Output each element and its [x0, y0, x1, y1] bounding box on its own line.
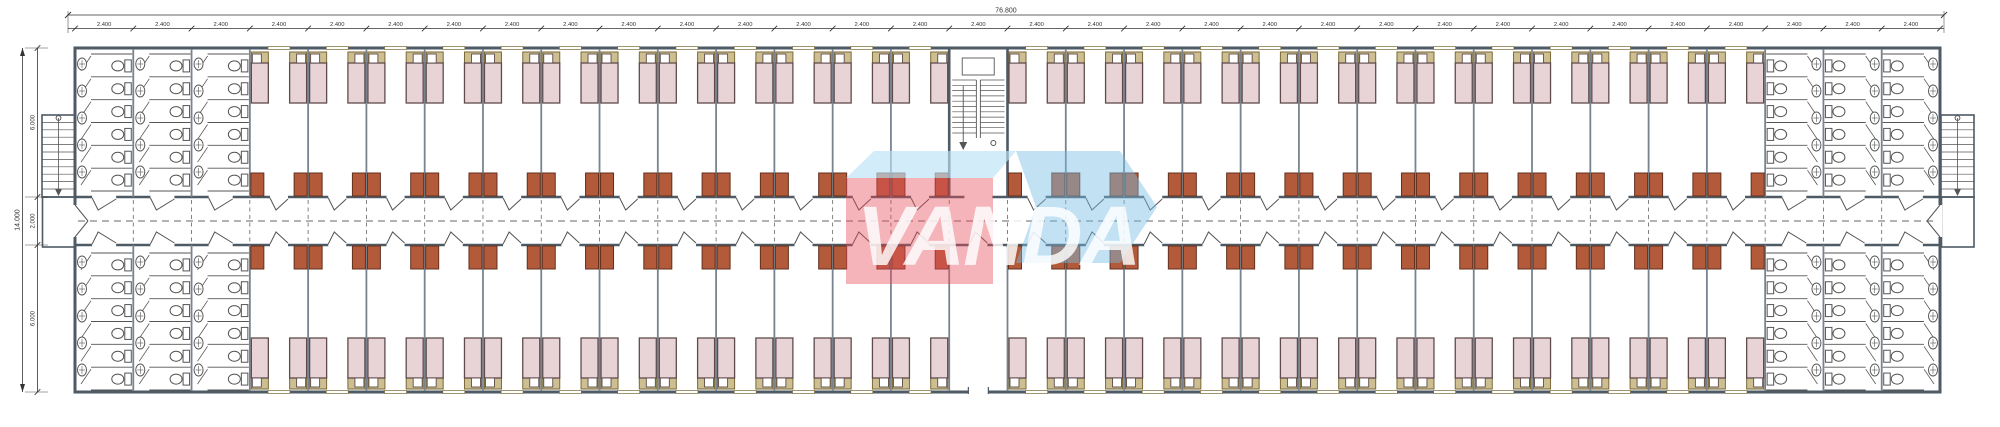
window	[618, 391, 640, 394]
wardrobe	[469, 173, 482, 196]
toilet-bowl	[170, 351, 182, 361]
bed-mattress	[1300, 338, 1317, 378]
bed-pillow	[1360, 54, 1369, 63]
window	[676, 391, 698, 394]
door-opening	[1202, 243, 1220, 247]
toilet-tank	[1884, 259, 1891, 271]
bed-mattress	[1514, 63, 1531, 103]
bed-pillow	[1754, 378, 1763, 387]
wardrobe	[601, 246, 614, 269]
bed-pillow	[544, 378, 553, 387]
toilet-tank	[1884, 282, 1891, 294]
dim-label-segment: 2.000	[31, 213, 37, 229]
toilet-tank	[241, 60, 248, 72]
door-opening	[73, 205, 77, 237]
bed-pillow	[1346, 54, 1355, 63]
bed-pillow	[879, 378, 888, 387]
bed-mattress	[1339, 63, 1356, 103]
wardrobe	[294, 246, 307, 269]
wardrobe	[1751, 173, 1764, 196]
bed-mattress	[251, 63, 268, 103]
bed-mattress	[1417, 63, 1434, 103]
bed-mattress	[1047, 338, 1064, 378]
window	[793, 391, 815, 394]
toilet-bowl	[1891, 61, 1903, 71]
toilet-tank	[241, 350, 248, 362]
wardrobe	[659, 173, 672, 196]
bed-mattress	[1475, 63, 1492, 103]
toilet-bowl	[1833, 61, 1845, 71]
bed-mattress	[1106, 338, 1123, 378]
bed-pillow	[297, 378, 306, 387]
bed-mattress	[1067, 338, 1084, 378]
toilet-bowl	[1891, 152, 1903, 162]
door-opening	[1938, 205, 1942, 237]
toilet-tank	[1884, 305, 1891, 317]
wardrobe	[1576, 173, 1589, 196]
dim-label-module: 2.400	[388, 22, 403, 28]
toilet-bowl	[1833, 152, 1845, 162]
window	[268, 47, 290, 50]
bed-mattress	[1708, 63, 1725, 103]
window	[1667, 391, 1689, 394]
toilet-tank	[183, 373, 190, 385]
bed-mattress	[1572, 338, 1589, 378]
toilet-bowl	[112, 283, 124, 293]
bed-pillow	[719, 378, 728, 387]
door-opening	[92, 195, 116, 199]
toilet-bowl	[1775, 260, 1787, 270]
toilet-bowl	[1833, 374, 1845, 384]
door-opening	[1494, 195, 1512, 199]
bed-mattress	[1514, 338, 1531, 378]
bed-pillow	[777, 378, 786, 387]
toilet-bowl	[228, 328, 240, 338]
toilet-bowl	[228, 61, 240, 71]
toilet-tank	[241, 106, 248, 118]
toilet-bowl	[1891, 374, 1903, 384]
bed-mattress	[464, 63, 481, 103]
bed-mattress	[348, 63, 365, 103]
stair-down-arrow	[1954, 189, 1961, 196]
bed-pillow	[1068, 54, 1077, 63]
window	[1725, 47, 1747, 50]
door-opening	[270, 243, 288, 247]
door-opening	[1782, 243, 1806, 247]
toilet-bowl	[1775, 107, 1787, 117]
toilet-tank	[1884, 174, 1891, 186]
toilet-tank	[125, 282, 132, 294]
dim-label-module: 2.400	[1670, 22, 1685, 28]
bed-mattress	[1106, 63, 1123, 103]
bed-pillow	[1287, 378, 1296, 387]
bed-mattress	[1126, 338, 1143, 378]
toilet-bowl	[1891, 328, 1903, 338]
toilet-bowl	[1891, 306, 1903, 316]
wardrobe	[1285, 246, 1298, 269]
door-opening	[1899, 195, 1923, 199]
toilet-tank	[1825, 174, 1832, 186]
bed-mattress	[426, 63, 443, 103]
door-opening	[1377, 195, 1395, 199]
bed-mattress	[523, 63, 540, 103]
bed-mattress	[776, 338, 793, 378]
bed-mattress	[1688, 338, 1705, 378]
wardrobe	[1416, 173, 1429, 196]
bed-mattress	[1359, 63, 1376, 103]
toilet-bowl	[170, 129, 182, 139]
window	[326, 47, 348, 50]
bed-mattress	[601, 338, 618, 378]
toilet-tank	[125, 83, 132, 95]
toilet-bowl	[112, 306, 124, 316]
toilet-bowl	[1891, 260, 1903, 270]
bed-mattress	[1397, 63, 1414, 103]
toilet-tank	[241, 83, 248, 95]
bed-mattress	[1242, 63, 1259, 103]
dim-label-module: 2.400	[1612, 22, 1627, 28]
door-opening	[620, 243, 638, 247]
wardrobe	[1708, 246, 1721, 269]
window	[268, 391, 290, 394]
toilet-bowl	[1833, 129, 1845, 139]
bed-mattress	[348, 338, 365, 378]
bed-mattress	[1184, 63, 1201, 103]
wardrobe	[1693, 246, 1706, 269]
door-opening	[678, 195, 696, 199]
toilet-tank	[125, 151, 132, 163]
bed-mattress	[659, 63, 676, 103]
toilet-tank	[1884, 151, 1891, 163]
door-opening	[503, 195, 521, 199]
door-opening	[620, 195, 638, 199]
toilet-tank	[241, 327, 248, 339]
bed-pillow	[1579, 378, 1588, 387]
bed-mattress	[1572, 63, 1589, 103]
toilet-bowl	[1891, 129, 1903, 139]
dim-label-module: 2.400	[1204, 22, 1219, 28]
toilet-bowl	[170, 374, 182, 384]
toilet-bowl	[228, 84, 240, 94]
wardrobe	[1227, 173, 1240, 196]
bed-mattress	[718, 338, 735, 378]
toilet-tank	[1825, 106, 1832, 118]
bed-pillow	[1637, 54, 1646, 63]
door-opening	[1669, 243, 1687, 247]
bed-pillow	[705, 54, 714, 63]
toilet-bowl	[228, 351, 240, 361]
bed-pillow	[763, 378, 772, 387]
wardrobe	[1751, 246, 1764, 269]
toilet-tank	[1767, 106, 1774, 118]
toilet-tank	[125, 128, 132, 140]
bed-mattress	[1009, 63, 1026, 103]
dim-label-module: 2.400	[680, 22, 695, 28]
bed-mattress	[601, 63, 618, 103]
toilet-tank	[1767, 373, 1774, 385]
toilet-bowl	[1775, 306, 1787, 316]
wardrobe	[1168, 173, 1181, 196]
toilet-bowl	[1891, 84, 1903, 94]
toilet-tank	[183, 259, 190, 271]
bed-pillow	[544, 54, 553, 63]
toilet-tank	[241, 373, 248, 385]
wardrobe	[601, 173, 614, 196]
bed-mattress	[1067, 63, 1084, 103]
wardrobe	[1168, 246, 1181, 269]
bed-mattress	[872, 338, 889, 378]
floor-plan-svg: 76.8002.4002.4002.4002.4002.4002.4002.40…	[0, 0, 2000, 427]
door-opening	[209, 243, 233, 247]
window	[1434, 47, 1456, 50]
bed-pillow	[1709, 378, 1718, 387]
wardrobe	[834, 246, 847, 269]
bed-mattress	[1534, 338, 1551, 378]
bed-mattress	[834, 63, 851, 103]
dim-label-segment: 6.000	[31, 310, 37, 326]
toilet-tank	[1884, 373, 1891, 385]
wardrobe	[1533, 173, 1546, 196]
bed-mattress	[872, 63, 889, 103]
toilet-tank	[183, 83, 190, 95]
bed-pillow	[1185, 378, 1194, 387]
bed-pillow	[427, 378, 436, 387]
bed-pillow	[1346, 378, 1355, 387]
window	[793, 47, 815, 50]
bed-mattress	[1630, 338, 1647, 378]
window	[1200, 47, 1222, 50]
window	[1142, 47, 1164, 50]
toilet-tank	[1825, 60, 1832, 72]
window	[1084, 391, 1106, 394]
window	[1375, 47, 1397, 50]
window	[559, 391, 581, 394]
dim-label-total: 76.800	[995, 8, 1017, 15]
bed-mattress	[1630, 63, 1647, 103]
bed-pillow	[252, 378, 261, 387]
bed-pillow	[1068, 378, 1077, 387]
bed-pillow	[821, 54, 830, 63]
wardrobe	[352, 246, 365, 269]
dim-label-module: 2.400	[1321, 22, 1336, 28]
wardrobe	[1576, 246, 1589, 269]
door-opening	[445, 195, 463, 199]
toilet-bowl	[170, 260, 182, 270]
bed-mattress	[484, 338, 501, 378]
wardrobe	[1693, 173, 1706, 196]
bed-mattress	[718, 63, 735, 103]
toilet-tank	[125, 305, 132, 317]
bed-pillow	[1229, 378, 1238, 387]
bed-mattress	[543, 338, 560, 378]
dim-label-module: 2.400	[1379, 22, 1394, 28]
bed-pillow	[1287, 54, 1296, 63]
toilet-bowl	[228, 175, 240, 185]
bed-pillow	[485, 54, 494, 63]
bed-mattress	[368, 338, 385, 378]
dim-label-module: 2.400	[1554, 22, 1569, 28]
bed-pillow	[1579, 54, 1588, 63]
toilet-tank	[241, 305, 248, 317]
door-opening	[270, 195, 288, 199]
bed-pillow	[602, 54, 611, 63]
window	[1434, 391, 1456, 394]
window	[443, 391, 465, 394]
toilet-bowl	[112, 107, 124, 117]
wardrobe	[1358, 246, 1371, 269]
door-opening	[1144, 243, 1162, 247]
stair-landing	[43, 197, 76, 247]
window	[851, 47, 873, 50]
window	[1492, 391, 1514, 394]
bed-pillow	[311, 54, 320, 63]
wardrobe	[1300, 246, 1313, 269]
bed-pillow	[1418, 54, 1427, 63]
toilet-tank	[125, 60, 132, 72]
bed-pillow	[1418, 378, 1427, 387]
toilet-tank	[1884, 60, 1891, 72]
wardrobe	[484, 173, 497, 196]
toilet-bowl	[1833, 84, 1845, 94]
dim-label-module: 2.400	[1845, 22, 1860, 28]
door-opening	[678, 243, 696, 247]
wardrobe	[1475, 246, 1488, 269]
toilet-bowl	[1775, 61, 1787, 71]
bed-pillow	[1521, 54, 1530, 63]
wardrobe	[644, 246, 657, 269]
dim-label-module: 2.400	[155, 22, 170, 28]
toilet-tank	[1884, 350, 1891, 362]
toilet-tank	[125, 259, 132, 271]
wardrobe	[1460, 173, 1473, 196]
bed-mattress	[659, 338, 676, 378]
bed-mattress	[1184, 338, 1201, 378]
bed-pillow	[530, 378, 539, 387]
bed-pillow	[1054, 54, 1063, 63]
toilet-tank	[1825, 128, 1832, 140]
window	[501, 47, 523, 50]
window	[1026, 391, 1048, 394]
bed-pillow	[1637, 378, 1646, 387]
door-opening	[1610, 243, 1628, 247]
bed-mattress	[698, 63, 715, 103]
toilet-bowl	[112, 152, 124, 162]
window	[734, 47, 756, 50]
bed-pillow	[471, 378, 480, 387]
wardrobe	[702, 246, 715, 269]
wardrobe	[1533, 246, 1546, 269]
bed-pillow	[1010, 54, 1019, 63]
dim-label-module: 2.400	[1787, 22, 1802, 28]
wardrobe	[1460, 246, 1473, 269]
bed-pillow	[355, 378, 364, 387]
door-opening	[387, 243, 405, 247]
wardrobe	[1183, 173, 1196, 196]
door-opening	[503, 243, 521, 247]
window	[1550, 391, 1572, 394]
bed-pillow	[705, 378, 714, 387]
wardrobe	[717, 246, 730, 269]
wardrobe	[760, 173, 773, 196]
door-opening	[1552, 243, 1570, 247]
toilet-bowl	[1833, 260, 1845, 270]
wardrobe	[586, 173, 599, 196]
toilet-tank	[1825, 282, 1832, 294]
dim-label-module: 2.400	[1496, 22, 1511, 28]
bed-mattress	[1747, 63, 1764, 103]
wardrobe	[542, 246, 555, 269]
stair-down-arrow	[55, 189, 62, 196]
wardrobe	[309, 246, 322, 269]
wardrobe	[1518, 173, 1531, 196]
wardrobe	[469, 246, 482, 269]
window	[1667, 47, 1689, 50]
window	[909, 47, 931, 50]
dim-label-module: 2.400	[913, 22, 928, 28]
door-opening	[736, 195, 754, 199]
bed-pillow	[1476, 54, 1485, 63]
bed-mattress	[1164, 63, 1181, 103]
bed-pillow	[1462, 54, 1471, 63]
dim-label-module: 2.400	[621, 22, 636, 28]
bed-mattress	[1009, 338, 1026, 378]
bed-pillow	[1695, 378, 1704, 387]
bed-mattress	[1222, 338, 1239, 378]
bed-pillow	[1476, 378, 1485, 387]
bed-mattress	[814, 338, 831, 378]
bed-mattress	[1650, 338, 1667, 378]
dim-label-module: 2.400	[1729, 22, 1744, 28]
bed-mattress	[1047, 63, 1064, 103]
bed-pillow	[485, 378, 494, 387]
wardrobe	[1227, 246, 1240, 269]
dim-label-module: 2.400	[1088, 22, 1103, 28]
bed-pillow	[1185, 54, 1194, 63]
toilet-bowl	[112, 129, 124, 139]
bed-mattress	[892, 63, 909, 103]
bed-mattress	[756, 338, 773, 378]
bed-mattress	[1397, 338, 1414, 378]
door-opening	[1261, 243, 1279, 247]
bed-mattress	[368, 63, 385, 103]
toilet-tank	[241, 282, 248, 294]
wardrobe	[309, 173, 322, 196]
window	[385, 391, 407, 394]
door-opening	[1202, 195, 1220, 199]
bed-mattress	[639, 63, 656, 103]
bed-pillow	[1171, 54, 1180, 63]
wardrobe	[1708, 173, 1721, 196]
door-opening	[1319, 195, 1337, 199]
bed-mattress	[581, 338, 598, 378]
wardrobe	[1591, 173, 1604, 196]
bed-mattress	[639, 338, 656, 378]
bed-pillow	[821, 378, 830, 387]
door-opening	[209, 195, 233, 199]
door-opening	[1436, 243, 1454, 247]
toilet-tank	[183, 174, 190, 186]
wardrobe	[251, 173, 264, 196]
dim-label-module: 2.400	[1146, 22, 1161, 28]
bed-mattress	[1534, 63, 1551, 103]
bed-mattress	[290, 338, 307, 378]
wardrobe	[1343, 173, 1356, 196]
door-opening	[328, 195, 346, 199]
dim-label-left-total: 14.000	[15, 209, 22, 231]
toilet-bowl	[112, 260, 124, 270]
wardrobe	[1475, 173, 1488, 196]
bed-pillow	[1243, 378, 1252, 387]
